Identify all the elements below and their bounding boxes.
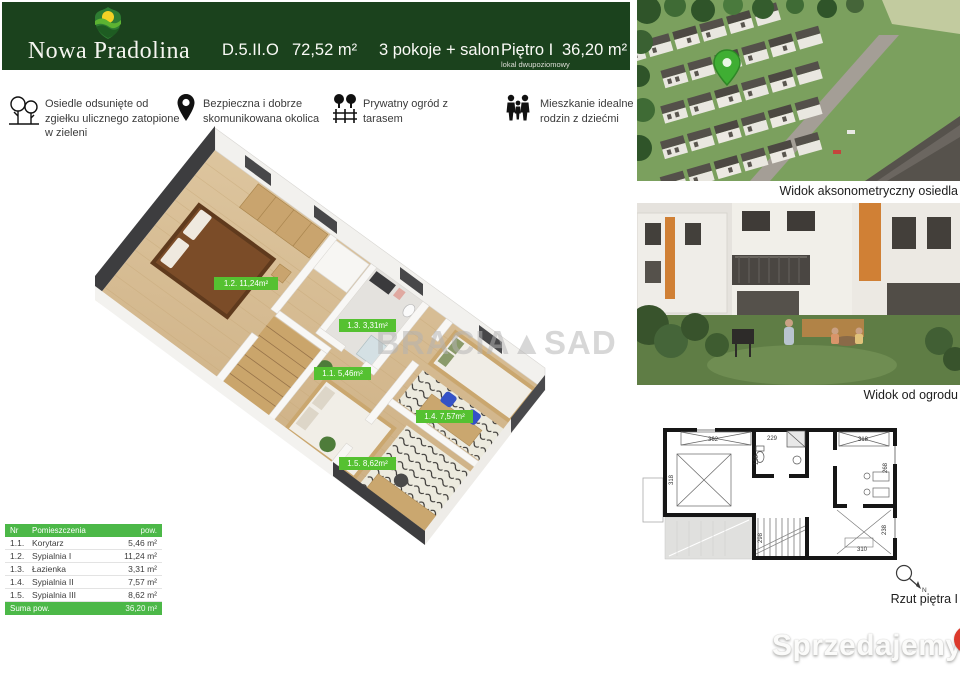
row-nr: 1.3.	[5, 564, 32, 574]
room-table: Nr Pomieszczenia pow. 1.1. Korytarz 5,46…	[5, 524, 162, 615]
room-label: 1.1. 5,46m²	[314, 367, 371, 380]
site-watermark: Sprzedajemy .pl	[772, 629, 960, 663]
table-row: 1.5. Sypialnia III 8,62 m²	[5, 589, 162, 602]
photo-garden-view	[637, 203, 960, 385]
unit-floor: Piętro I	[501, 41, 553, 60]
flyer-page: Nowa Pradolina D.5.II.O 72,52 m² 3 pokoj…	[0, 0, 960, 679]
row-name: Sypialnia I	[32, 551, 115, 561]
dim-label: 268	[883, 462, 889, 473]
row-name: Korytarz	[32, 538, 115, 548]
row-nr: 1.5.	[5, 590, 32, 600]
unit-floor-area: 36,20 m²	[562, 41, 627, 60]
room-table-header: Nr Pomieszczenia pow.	[5, 524, 162, 537]
room-label: 1.4. 7,57m²	[416, 410, 473, 423]
table-row: 1.1. Korytarz 5,46 m²	[5, 537, 162, 550]
row-nr: 1.1.	[5, 538, 32, 548]
dim-label: 238	[882, 524, 888, 535]
location-pin-icon	[176, 93, 196, 123]
dim-label: 150	[754, 454, 760, 465]
table-row: 1.2. Sypialnia I 11,24 m²	[5, 550, 162, 563]
row-nr: 1.4.	[5, 577, 32, 587]
dim-label: 318	[669, 474, 675, 485]
sum-label: Suma pow.	[5, 604, 111, 613]
room-label: 1.3. 3,31m²	[339, 319, 396, 332]
header-bar: Nowa Pradolina D.5.II.O 72,52 m² 3 pokoj…	[2, 2, 630, 70]
technical-floorplan: 362 318 229 150 318 268 298 310 238 N	[637, 418, 960, 593]
dim-label: 310	[857, 547, 868, 553]
row-nr: 1.2.	[5, 551, 32, 561]
row-area: 5,46 m²	[115, 538, 162, 548]
dim-label: 318	[858, 437, 869, 443]
row-name: Sypialnia III	[32, 590, 115, 600]
col-name: Pomieszczenia	[32, 526, 111, 535]
trees-icon	[8, 93, 40, 127]
room-label: 1.5. 8,62m²	[339, 457, 396, 470]
dim-label: 362	[708, 437, 719, 443]
row-name: Łazienka	[32, 564, 115, 574]
col-nr: Nr	[5, 526, 32, 535]
row-area: 3,31 m²	[115, 564, 162, 574]
unit-id: D.5.II.O	[222, 41, 279, 60]
caption-garden: Widok od ogrodu	[863, 388, 958, 402]
unit-floor-note: lokal dwupoziomowy	[501, 60, 570, 69]
agency-watermark: BRACIA▲SAD	[376, 324, 617, 362]
brand-logo-icon	[90, 6, 126, 40]
dim-label: 229	[767, 436, 778, 442]
caption-aerial: Widok aksonometryczny osiedla	[779, 184, 958, 198]
caption-plan: Rzut piętra I	[891, 592, 958, 606]
table-row: 1.4. Sypialnia II 7,57 m²	[5, 576, 162, 589]
family-icon	[503, 94, 533, 122]
dim-label: 298	[758, 532, 764, 543]
brand-name: Nowa Pradolina	[22, 38, 196, 65]
unit-total-area: 72,52 m²	[292, 41, 357, 60]
table-row: 1.3. Łazienka 3,31 m²	[5, 563, 162, 576]
site-watermark-text: Sprzedajemy	[772, 629, 960, 663]
col-area: pow.	[111, 526, 162, 535]
row-name: Sypialnia II	[32, 577, 115, 587]
unit-rooms: 3 pokoje + salon	[379, 41, 500, 60]
room-label: 1.2. 11,24m²	[214, 277, 278, 290]
sum-value: 36,20 m²	[111, 604, 162, 613]
photo-aerial-view	[637, 0, 960, 181]
room-table-footer: Suma pow. 36,20 m²	[5, 602, 162, 615]
row-area: 11,24 m²	[115, 551, 162, 561]
row-area: 7,57 m²	[115, 577, 162, 587]
row-area: 8,62 m²	[115, 590, 162, 600]
balcony	[732, 255, 810, 285]
